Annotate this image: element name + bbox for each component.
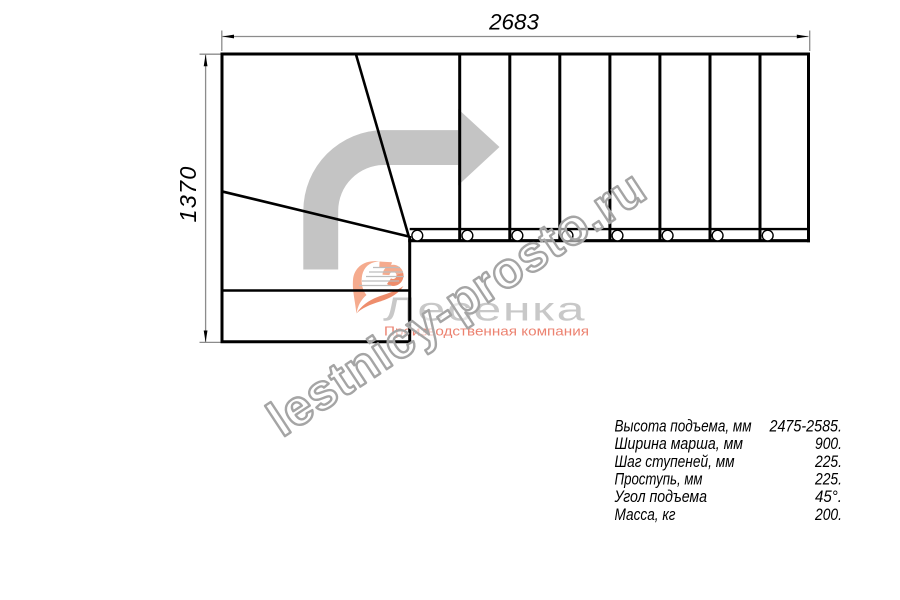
svg-text:Масса, кг: Масса, кг [615, 506, 676, 524]
svg-text:Шаг ступеней, мм: Шаг ступеней, мм [615, 453, 735, 471]
svg-text:Проступь, мм: Проступь, мм [615, 471, 703, 489]
svg-text:200.: 200. [814, 505, 842, 524]
svg-text:45°.: 45°. [815, 487, 842, 506]
svg-text:900.: 900. [815, 434, 842, 453]
svg-text:2683: 2683 [488, 10, 539, 35]
svg-text:Высота подъема, мм: Высота подъема, мм [615, 418, 752, 436]
svg-text:Угол подъема: Угол подъема [614, 488, 707, 506]
svg-text:1370: 1370 [175, 165, 201, 222]
svg-text:2475-2585.: 2475-2585. [769, 417, 842, 436]
svg-text:Ширина марша, мм: Ширина марша, мм [615, 435, 744, 453]
svg-text:225.: 225. [814, 470, 842, 489]
svg-text:225.: 225. [814, 452, 842, 471]
